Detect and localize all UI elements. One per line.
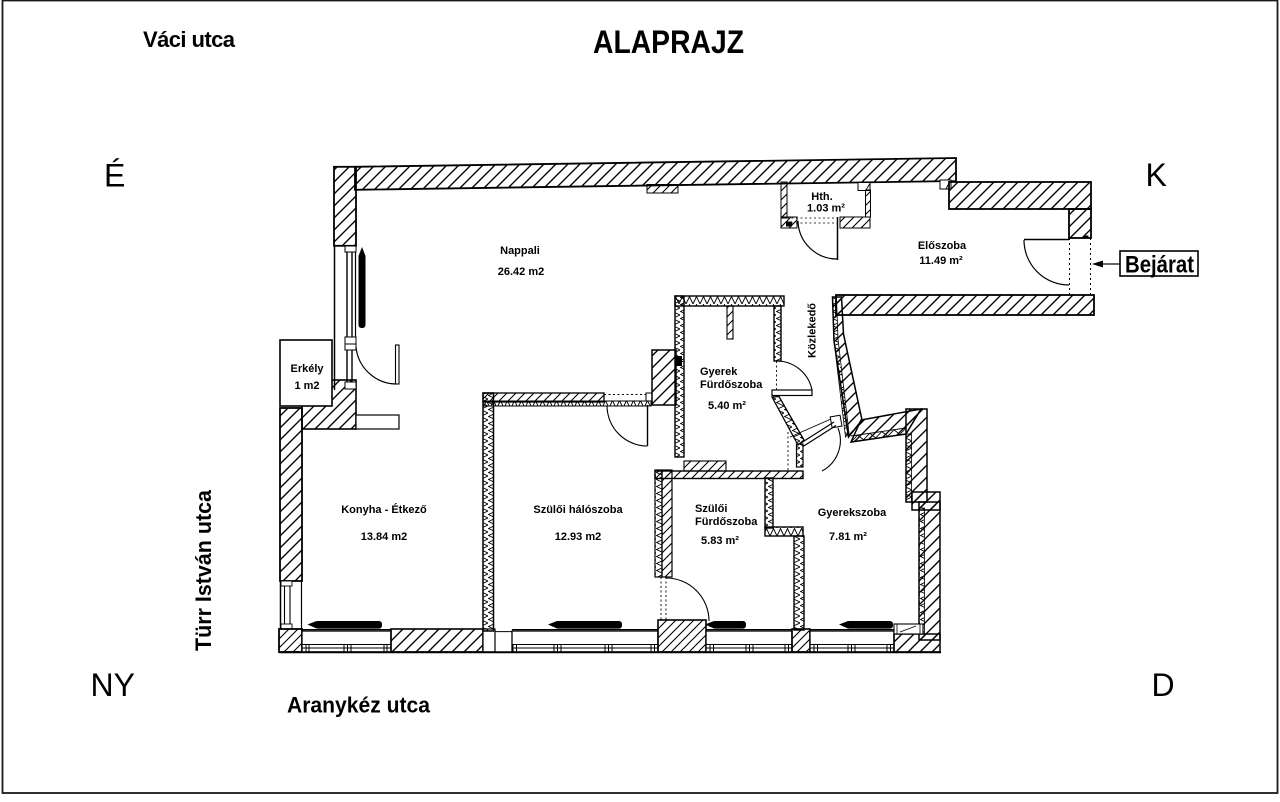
svg-text:12.93 m2: 12.93 m2 bbox=[555, 531, 601, 543]
svg-text:Nappali: Nappali bbox=[500, 245, 540, 257]
svg-text:NY: NY bbox=[91, 667, 135, 703]
svg-text:Gyerekszoba: Gyerekszoba bbox=[818, 507, 887, 519]
svg-text:Fürdőszoba: Fürdőszoba bbox=[700, 379, 763, 391]
svg-text:Előszoba: Előszoba bbox=[918, 240, 967, 252]
svg-text:Váci utca: Váci utca bbox=[143, 27, 236, 52]
svg-text:Fürdőszoba: Fürdőszoba bbox=[695, 516, 758, 528]
svg-text:É: É bbox=[104, 158, 125, 194]
svg-text:Szülői: Szülői bbox=[695, 503, 727, 515]
svg-text:D: D bbox=[1152, 667, 1175, 703]
svg-text:1 m2: 1 m2 bbox=[294, 380, 319, 392]
svg-text:Konyha - Étkező: Konyha - Étkező bbox=[341, 503, 427, 516]
svg-text:Aranykéz utca: Aranykéz utca bbox=[287, 693, 431, 718]
svg-text:13.84 m2: 13.84 m2 bbox=[361, 531, 407, 543]
svg-text:11.49 m²: 11.49 m² bbox=[919, 255, 963, 267]
svg-text:7.81 m²: 7.81 m² bbox=[829, 531, 867, 543]
svg-text:Erkély: Erkély bbox=[290, 363, 324, 375]
svg-text:Szülői hálószoba: Szülői hálószoba bbox=[533, 504, 623, 516]
svg-text:26.42 m2: 26.42 m2 bbox=[498, 266, 544, 278]
svg-text:Türr István utca: Türr István utca bbox=[191, 489, 216, 651]
svg-text:Hth.: Hth. bbox=[811, 191, 832, 203]
svg-text:Gyerek: Gyerek bbox=[700, 366, 738, 378]
svg-text:K: K bbox=[1146, 157, 1167, 193]
svg-text:Bejárat: Bejárat bbox=[1125, 252, 1194, 279]
svg-text:ALAPRAJZ: ALAPRAJZ bbox=[593, 24, 744, 60]
svg-text:1.03 m²: 1.03 m² bbox=[807, 203, 845, 215]
svg-text:5.40 m²: 5.40 m² bbox=[708, 400, 746, 412]
svg-text:5.83 m²: 5.83 m² bbox=[701, 535, 739, 547]
svg-text:Közlekedő: Közlekedő bbox=[807, 303, 819, 358]
